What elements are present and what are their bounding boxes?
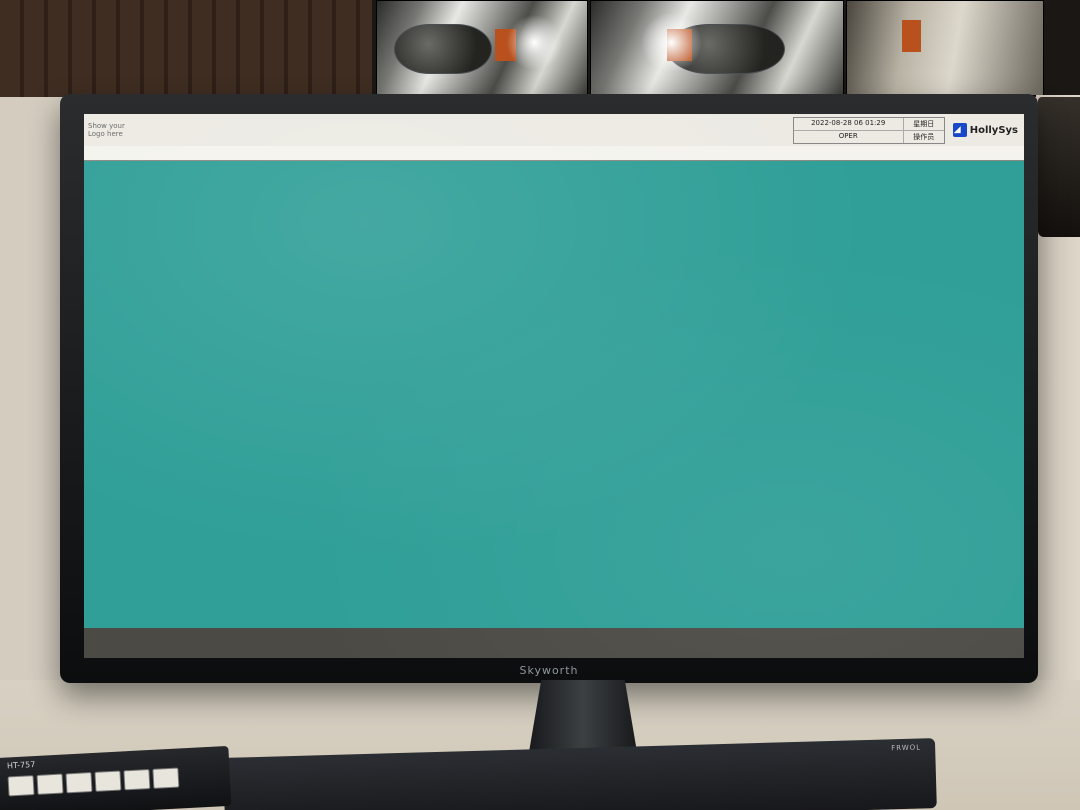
photo-scene: Skyworth Show your Logo here 2022-08-28 … xyxy=(0,0,1080,810)
role: 操作员 xyxy=(904,131,944,143)
cctv-screen-3 xyxy=(846,0,1044,96)
keypad-keys xyxy=(8,765,231,797)
cctv-screen-2 xyxy=(590,0,844,96)
alarm-bar xyxy=(84,146,1024,161)
toolbar: Show your Logo here 2022-08-28 06 01:29星… xyxy=(84,114,1024,147)
monitor-brand-label: Skyworth xyxy=(60,664,1038,677)
hollysys-logo-icon: ◢ xyxy=(953,123,967,137)
scada-screen: Show your Logo here 2022-08-28 06 01:29星… xyxy=(84,114,1024,658)
mimic-diagram xyxy=(84,160,1024,628)
small-keypad: HT-757 xyxy=(0,746,231,810)
cctv-screen-1 xyxy=(376,0,588,96)
keypad-label: HT-757 xyxy=(7,760,36,770)
keyboard-brand-label: FRWOL xyxy=(891,743,921,752)
logo-placeholder: Show your Logo here xyxy=(84,122,152,138)
wall-object xyxy=(1038,97,1080,237)
hollysys-logo: ◢HollySys xyxy=(953,123,1018,137)
cctv-wall xyxy=(0,0,1080,97)
wood-wall xyxy=(0,0,372,97)
user: OPER xyxy=(794,131,904,143)
page-tab-bar xyxy=(84,628,1024,658)
weekday: 星期日 xyxy=(904,118,944,130)
clock-panel: 2022-08-28 06 01:29星期日 OPER操作员 xyxy=(793,117,945,144)
date-time: 2022-08-28 06 01:29 xyxy=(794,118,904,130)
